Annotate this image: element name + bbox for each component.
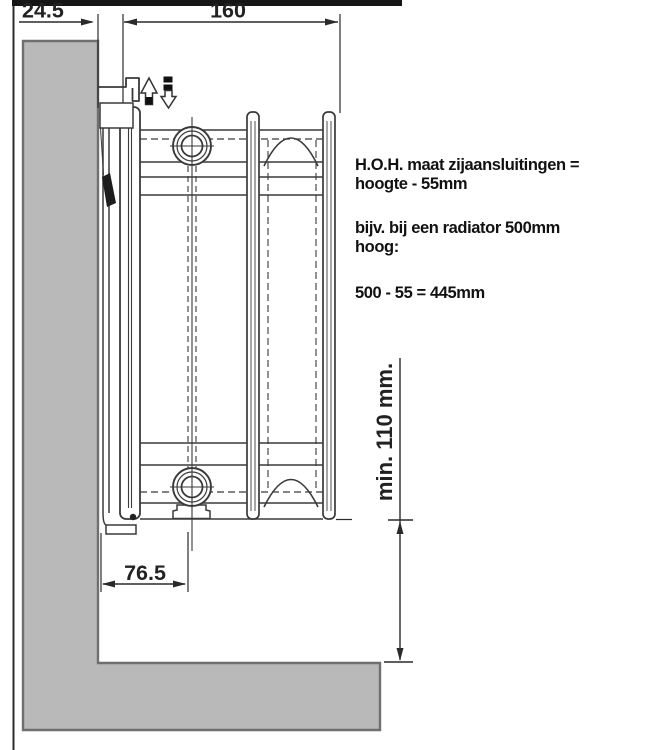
arrow-right-icon xyxy=(81,19,94,26)
dimension-pipe-offset: 76.5 xyxy=(101,532,188,592)
panel-middle xyxy=(247,112,259,519)
arrow-up-icon xyxy=(397,521,404,534)
arrow-down-icon xyxy=(161,91,176,109)
radiator xyxy=(120,107,335,551)
annotation-notes: H.O.H. maat zijaansluitingen = hoogte - … xyxy=(355,156,579,302)
dimension-bracket-depth: 160 xyxy=(123,0,340,113)
radiator-top-header-lines xyxy=(140,130,323,195)
bracket-top-hook xyxy=(98,78,139,101)
bottom-clip xyxy=(130,514,136,520)
radiator-panels xyxy=(120,107,335,519)
bracket-foot xyxy=(106,525,136,534)
arrow-down-band xyxy=(164,77,173,83)
arrow-left-icon xyxy=(124,19,137,26)
bracket-body xyxy=(100,103,133,128)
arrow-right-icon xyxy=(325,19,338,26)
dim-min-clearance-label: min. 110 mm. xyxy=(372,363,397,501)
top-bar xyxy=(12,0,402,6)
arrow-down-icon xyxy=(397,648,404,661)
dim-wall-offset-label: 24.5 xyxy=(22,0,64,23)
note-line-5: 500 - 55 = 445mm xyxy=(355,284,485,302)
dim-pipe-offset-label: 76.5 xyxy=(124,561,166,585)
note-line-1: H.O.H. maat zijaansluitingen = xyxy=(355,156,579,174)
arrow-up-shaft xyxy=(146,97,153,105)
radiator-technical-diagram: 24.5 160 xyxy=(0,0,650,750)
arrow-down-band xyxy=(164,85,173,91)
arrow-left-icon xyxy=(102,581,115,588)
note-line-2: hoogte - 55mm xyxy=(355,175,467,193)
panel-front xyxy=(120,107,140,519)
panel-rear xyxy=(323,112,335,519)
note-line-3: bijv. bij een radiator 500mm xyxy=(355,219,560,237)
mounting-direction-arrows xyxy=(141,77,176,109)
bracket-clip-spring xyxy=(102,173,116,207)
dim-bracket-depth-label: 160 xyxy=(210,0,246,23)
note-line-4: hoog: xyxy=(355,238,399,256)
arrow-right-icon xyxy=(173,581,186,588)
dimension-min-floor-clearance: min. 110 mm. xyxy=(336,358,413,662)
radiator-mounting-diagram-page: 24.5 160 xyxy=(0,0,650,750)
